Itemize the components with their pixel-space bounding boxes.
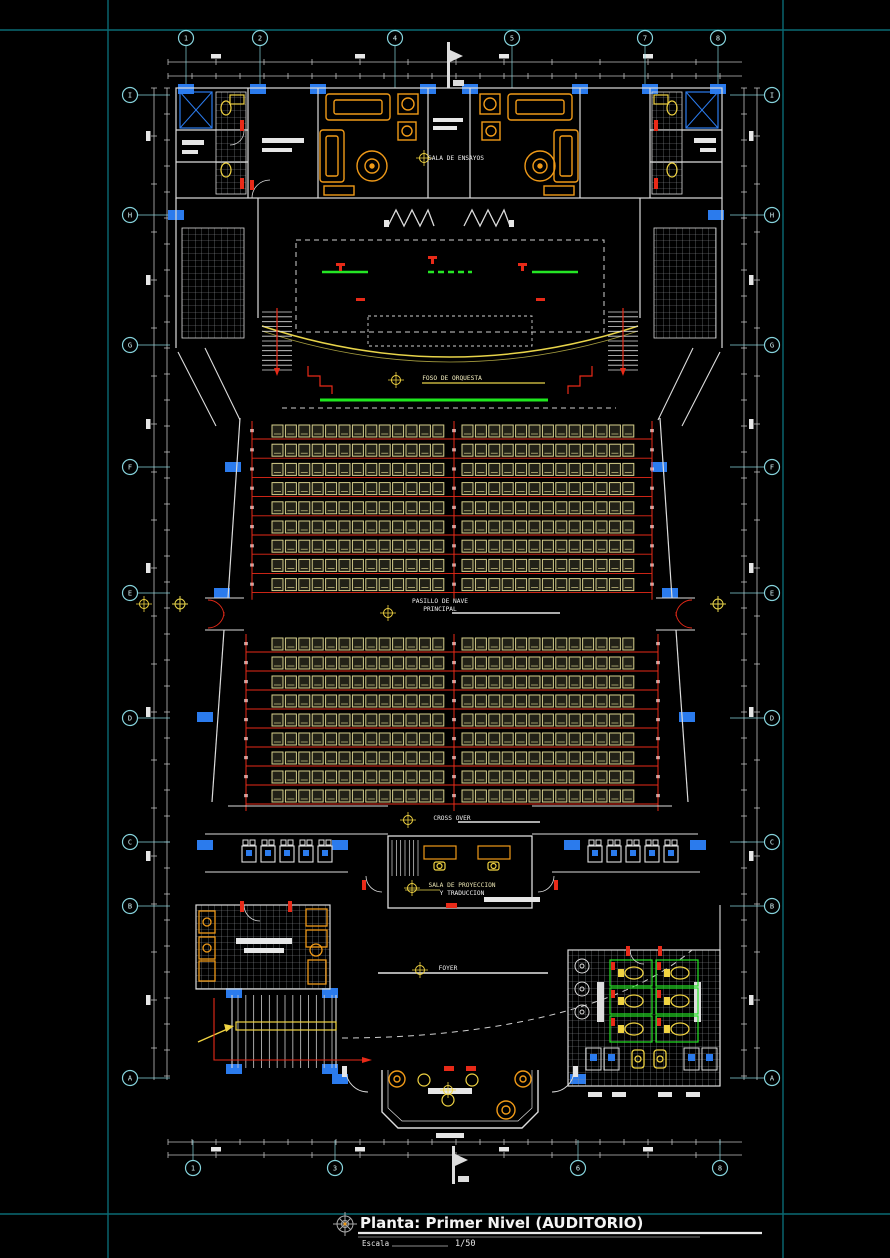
seat	[366, 444, 377, 456]
seat	[379, 502, 390, 514]
makeup-chair-right-seat	[592, 850, 598, 856]
column	[226, 1064, 242, 1074]
seat	[272, 559, 283, 571]
seat	[299, 752, 310, 764]
seat	[433, 676, 444, 688]
seat	[352, 425, 363, 437]
seat	[556, 502, 567, 514]
seat	[433, 483, 444, 495]
seat	[542, 444, 553, 456]
dim-text-bar	[749, 995, 754, 1005]
seat	[583, 790, 594, 802]
seat	[569, 483, 580, 495]
leader-target-icon	[136, 596, 152, 612]
toilet-tank	[618, 969, 624, 977]
seat	[529, 559, 540, 571]
section-marker-top	[447, 42, 464, 88]
seat	[569, 676, 580, 688]
seat	[433, 695, 444, 707]
seat	[596, 771, 607, 783]
seat	[352, 733, 363, 745]
seat	[623, 638, 634, 650]
seat	[569, 771, 580, 783]
section-marker-bottom	[452, 1146, 469, 1184]
seat	[475, 521, 486, 533]
makeup-chair-left-ear	[319, 840, 324, 845]
seat	[393, 502, 404, 514]
stall-door	[611, 1018, 615, 1026]
seat	[462, 790, 473, 802]
bath-lower-left	[196, 901, 330, 989]
seat	[623, 579, 634, 591]
seat	[339, 676, 350, 688]
seat	[433, 714, 444, 726]
seat	[299, 521, 310, 533]
seat	[583, 483, 594, 495]
label-foyer: FOYER	[439, 965, 458, 972]
seat	[583, 771, 594, 783]
seat	[366, 752, 377, 764]
wing-right-tiled	[654, 228, 716, 338]
seat	[299, 714, 310, 726]
seat	[609, 579, 620, 591]
seat	[609, 483, 620, 495]
seat	[596, 714, 607, 726]
dim-text-bar	[355, 1147, 365, 1152]
seat	[339, 771, 350, 783]
seat	[569, 695, 580, 707]
makeup-chair-left-ear	[288, 840, 293, 845]
seat	[285, 521, 296, 533]
seat	[475, 752, 486, 764]
seat	[312, 444, 323, 456]
seat	[609, 714, 620, 726]
seat	[516, 521, 527, 533]
seat	[556, 444, 567, 456]
seat	[312, 771, 323, 783]
seat	[272, 771, 283, 783]
seat	[272, 638, 283, 650]
seat	[542, 521, 553, 533]
seat	[312, 559, 323, 571]
audience-seating	[212, 418, 688, 811]
makeup-chair-right-ear	[589, 840, 594, 845]
seat	[406, 790, 417, 802]
seat	[502, 444, 513, 456]
seat	[366, 579, 377, 591]
seat	[299, 657, 310, 669]
seat	[583, 676, 594, 688]
stall-door	[657, 990, 661, 998]
seat	[352, 657, 363, 669]
makeup-chair-right-ear	[646, 840, 651, 845]
seat	[352, 521, 363, 533]
makeup-chair-right-ear	[615, 840, 620, 845]
seat	[352, 790, 363, 802]
makeup-chair-left-seat	[284, 850, 290, 856]
seat	[489, 463, 500, 475]
seat	[502, 638, 513, 650]
seat	[583, 425, 594, 437]
seat	[326, 771, 337, 783]
seat	[379, 714, 390, 726]
seat	[339, 463, 350, 475]
seat	[393, 790, 404, 802]
seat	[609, 638, 620, 650]
dressing-room-left	[320, 94, 418, 195]
drawing-title: Planta: Primer Nivel (AUDITORIO)	[360, 1214, 643, 1232]
seat	[596, 559, 607, 571]
seat	[529, 695, 540, 707]
seat	[596, 425, 607, 437]
seat	[462, 733, 473, 745]
seat	[462, 425, 473, 437]
seat	[542, 579, 553, 591]
seat	[299, 444, 310, 456]
seat	[285, 502, 296, 514]
seat	[326, 752, 337, 764]
wing-left-tiled	[182, 228, 244, 338]
seat	[542, 540, 553, 552]
column	[197, 840, 213, 850]
seat	[462, 559, 473, 571]
toilet-tank	[618, 1025, 624, 1033]
seat	[406, 676, 417, 688]
seat	[406, 425, 417, 437]
makeup-chair-right-seat	[668, 850, 674, 856]
accordion-doors	[384, 210, 514, 227]
seat	[516, 463, 527, 475]
seat	[312, 790, 323, 802]
seat	[583, 444, 594, 456]
seat	[433, 752, 444, 764]
seat	[379, 425, 390, 437]
seat	[272, 676, 283, 688]
seat	[556, 790, 567, 802]
bottom-dim-bars	[588, 1092, 700, 1097]
seat	[596, 463, 607, 475]
seat	[542, 790, 553, 802]
grid-bubble-label: H	[770, 212, 774, 220]
grid-bubble-label: E	[770, 590, 774, 598]
seat	[272, 790, 283, 802]
seat	[312, 483, 323, 495]
seat	[379, 752, 390, 764]
seat	[542, 752, 553, 764]
seat	[339, 483, 350, 495]
dim-text-bar	[749, 563, 754, 573]
seat	[489, 733, 500, 745]
leader-target-icon	[440, 1082, 456, 1098]
dim-text-bar	[355, 54, 365, 59]
seat	[352, 540, 363, 552]
seat	[339, 579, 350, 591]
seat	[339, 521, 350, 533]
makeup-chair-left-seat	[322, 850, 328, 856]
seat	[556, 752, 567, 764]
scale-value: 1/50	[455, 1239, 475, 1249]
seat	[529, 502, 540, 514]
seat	[542, 733, 553, 745]
seat	[542, 483, 553, 495]
seat	[352, 502, 363, 514]
seat	[312, 521, 323, 533]
seat	[475, 714, 486, 726]
seat	[393, 752, 404, 764]
dim-text-bar	[749, 707, 754, 717]
grid-bubble-label: I	[128, 92, 132, 100]
seat	[475, 559, 486, 571]
seat	[272, 714, 283, 726]
seat	[326, 521, 337, 533]
seat	[419, 733, 430, 745]
seat	[475, 771, 486, 783]
seat	[419, 790, 430, 802]
seat	[623, 444, 634, 456]
label-sala-ensayos: SALA DE ENSAYOS	[428, 155, 484, 162]
seat	[462, 521, 473, 533]
seat	[272, 463, 283, 475]
seat	[272, 733, 283, 745]
seat	[299, 790, 310, 802]
seat	[419, 483, 430, 495]
seat	[419, 502, 430, 514]
seat	[462, 483, 473, 495]
seat	[569, 752, 580, 764]
seat	[433, 771, 444, 783]
seat	[516, 502, 527, 514]
makeup-chair-left-ear	[300, 840, 305, 845]
seat	[623, 425, 634, 437]
dim-text-bar	[643, 54, 653, 59]
seat	[475, 676, 486, 688]
seat	[352, 638, 363, 650]
seat	[406, 463, 417, 475]
seat-wall-left	[212, 630, 224, 802]
column	[662, 588, 678, 598]
seat	[379, 540, 390, 552]
grid-bubble-label: 8	[716, 35, 720, 43]
seat	[366, 463, 377, 475]
seat	[489, 483, 500, 495]
seat	[406, 695, 417, 707]
column	[332, 840, 348, 850]
column	[197, 712, 213, 722]
seat	[556, 676, 567, 688]
grid-bubble-label: H	[128, 212, 132, 220]
column	[250, 84, 266, 94]
toilet-tank	[664, 969, 670, 977]
dim-text-bar	[146, 131, 151, 141]
toilet-tank	[664, 1025, 670, 1033]
seat	[393, 638, 404, 650]
seat	[462, 444, 473, 456]
seat	[419, 579, 430, 591]
stage-stair-left	[262, 308, 292, 376]
seat	[299, 676, 310, 688]
seat	[379, 521, 390, 533]
leader-target-icon	[412, 962, 428, 978]
seat	[339, 714, 350, 726]
grid-bubble-label: B	[128, 903, 132, 911]
grid-bubble-label: D	[128, 715, 132, 723]
seat	[352, 752, 363, 764]
seat	[433, 638, 444, 650]
seat	[406, 483, 417, 495]
seat	[609, 657, 620, 669]
seat	[366, 714, 377, 726]
dim-text-bar	[749, 131, 754, 141]
seat	[312, 657, 323, 669]
seat	[393, 521, 404, 533]
seat	[556, 559, 567, 571]
seat	[285, 752, 296, 764]
seat	[596, 502, 607, 514]
seat	[312, 638, 323, 650]
seat	[556, 463, 567, 475]
makeup-chair-left-ear	[326, 840, 331, 845]
seat	[419, 752, 430, 764]
seat	[419, 676, 430, 688]
seat	[609, 502, 620, 514]
seat	[583, 463, 594, 475]
grid-bubble-label: E	[128, 590, 132, 598]
seat	[366, 790, 377, 802]
stage-marks	[336, 256, 545, 301]
seat	[609, 695, 620, 707]
seat	[569, 579, 580, 591]
seat	[352, 695, 363, 707]
seat	[339, 733, 350, 745]
seat	[542, 425, 553, 437]
seat	[326, 733, 337, 745]
label-pasillo-2: PRINCIPAL	[423, 606, 457, 613]
dim-text-bar	[749, 275, 754, 285]
stall-door	[657, 1018, 661, 1026]
seat	[366, 425, 377, 437]
seat	[542, 502, 553, 514]
seat	[419, 695, 430, 707]
seat	[352, 559, 363, 571]
seat	[433, 559, 444, 571]
seat	[419, 638, 430, 650]
seat	[502, 521, 513, 533]
seat	[596, 657, 607, 669]
seat	[326, 657, 337, 669]
seat	[326, 483, 337, 495]
seat	[516, 676, 527, 688]
seat	[489, 579, 500, 591]
label-proyeccion-2: Y TRADUCCION	[440, 890, 485, 897]
seat	[569, 714, 580, 726]
seat	[326, 463, 337, 475]
seat	[433, 540, 444, 552]
seat	[379, 463, 390, 475]
seat	[339, 540, 350, 552]
seat	[419, 521, 430, 533]
seat	[489, 521, 500, 533]
seat	[623, 483, 634, 495]
cad-canvas: 1245781368IHGFEDCBAIHGFEDCBA	[0, 0, 890, 1258]
seat	[339, 559, 350, 571]
seat	[516, 540, 527, 552]
seat	[556, 425, 567, 437]
seat	[285, 444, 296, 456]
seat	[516, 579, 527, 591]
seat	[623, 540, 634, 552]
grid-bubble-label: 5	[510, 35, 514, 43]
seat	[272, 444, 283, 456]
seat	[556, 579, 567, 591]
seat	[285, 771, 296, 783]
seat	[433, 579, 444, 591]
seat	[419, 425, 430, 437]
seat	[285, 425, 296, 437]
seat	[609, 733, 620, 745]
seat	[475, 790, 486, 802]
seat	[542, 463, 553, 475]
seat	[299, 483, 310, 495]
stall-door	[657, 962, 661, 970]
room-top-left	[250, 138, 304, 198]
makeup-chair-right-ear	[653, 840, 658, 845]
seat	[366, 657, 377, 669]
dim-text-bar	[146, 563, 151, 573]
seat	[272, 657, 283, 669]
seat	[569, 521, 580, 533]
seat	[529, 425, 540, 437]
seat	[272, 579, 283, 591]
seat	[475, 695, 486, 707]
seat	[285, 463, 296, 475]
label-foso-orquesta: FOSO DE ORQUESTA	[422, 375, 482, 382]
makeup-chair-left-ear	[262, 840, 267, 845]
seat	[516, 425, 527, 437]
seat	[583, 638, 594, 650]
grid-bubble-label: G	[128, 342, 132, 350]
grid-bubble-label: I	[770, 92, 774, 100]
seat	[529, 752, 540, 764]
seat	[352, 483, 363, 495]
seat	[352, 771, 363, 783]
seat	[623, 559, 634, 571]
seat	[623, 502, 634, 514]
seat	[556, 714, 567, 726]
stage-zone	[176, 198, 722, 426]
grid-bubble-label: F	[770, 464, 774, 472]
makeup-chair-right-seat	[649, 850, 655, 856]
seat	[556, 483, 567, 495]
seat	[326, 579, 337, 591]
seat	[623, 752, 634, 764]
seat	[516, 771, 527, 783]
seat	[299, 733, 310, 745]
seat	[502, 483, 513, 495]
seat	[623, 463, 634, 475]
seat	[379, 790, 390, 802]
makeup-chair-left-seat	[246, 850, 252, 856]
seat	[326, 676, 337, 688]
seat	[419, 771, 430, 783]
seat	[366, 521, 377, 533]
seat	[609, 521, 620, 533]
seat	[596, 752, 607, 764]
seat	[489, 540, 500, 552]
seat	[502, 733, 513, 745]
seat	[542, 657, 553, 669]
makeup-chair-right-seat	[611, 850, 617, 856]
seat	[299, 540, 310, 552]
